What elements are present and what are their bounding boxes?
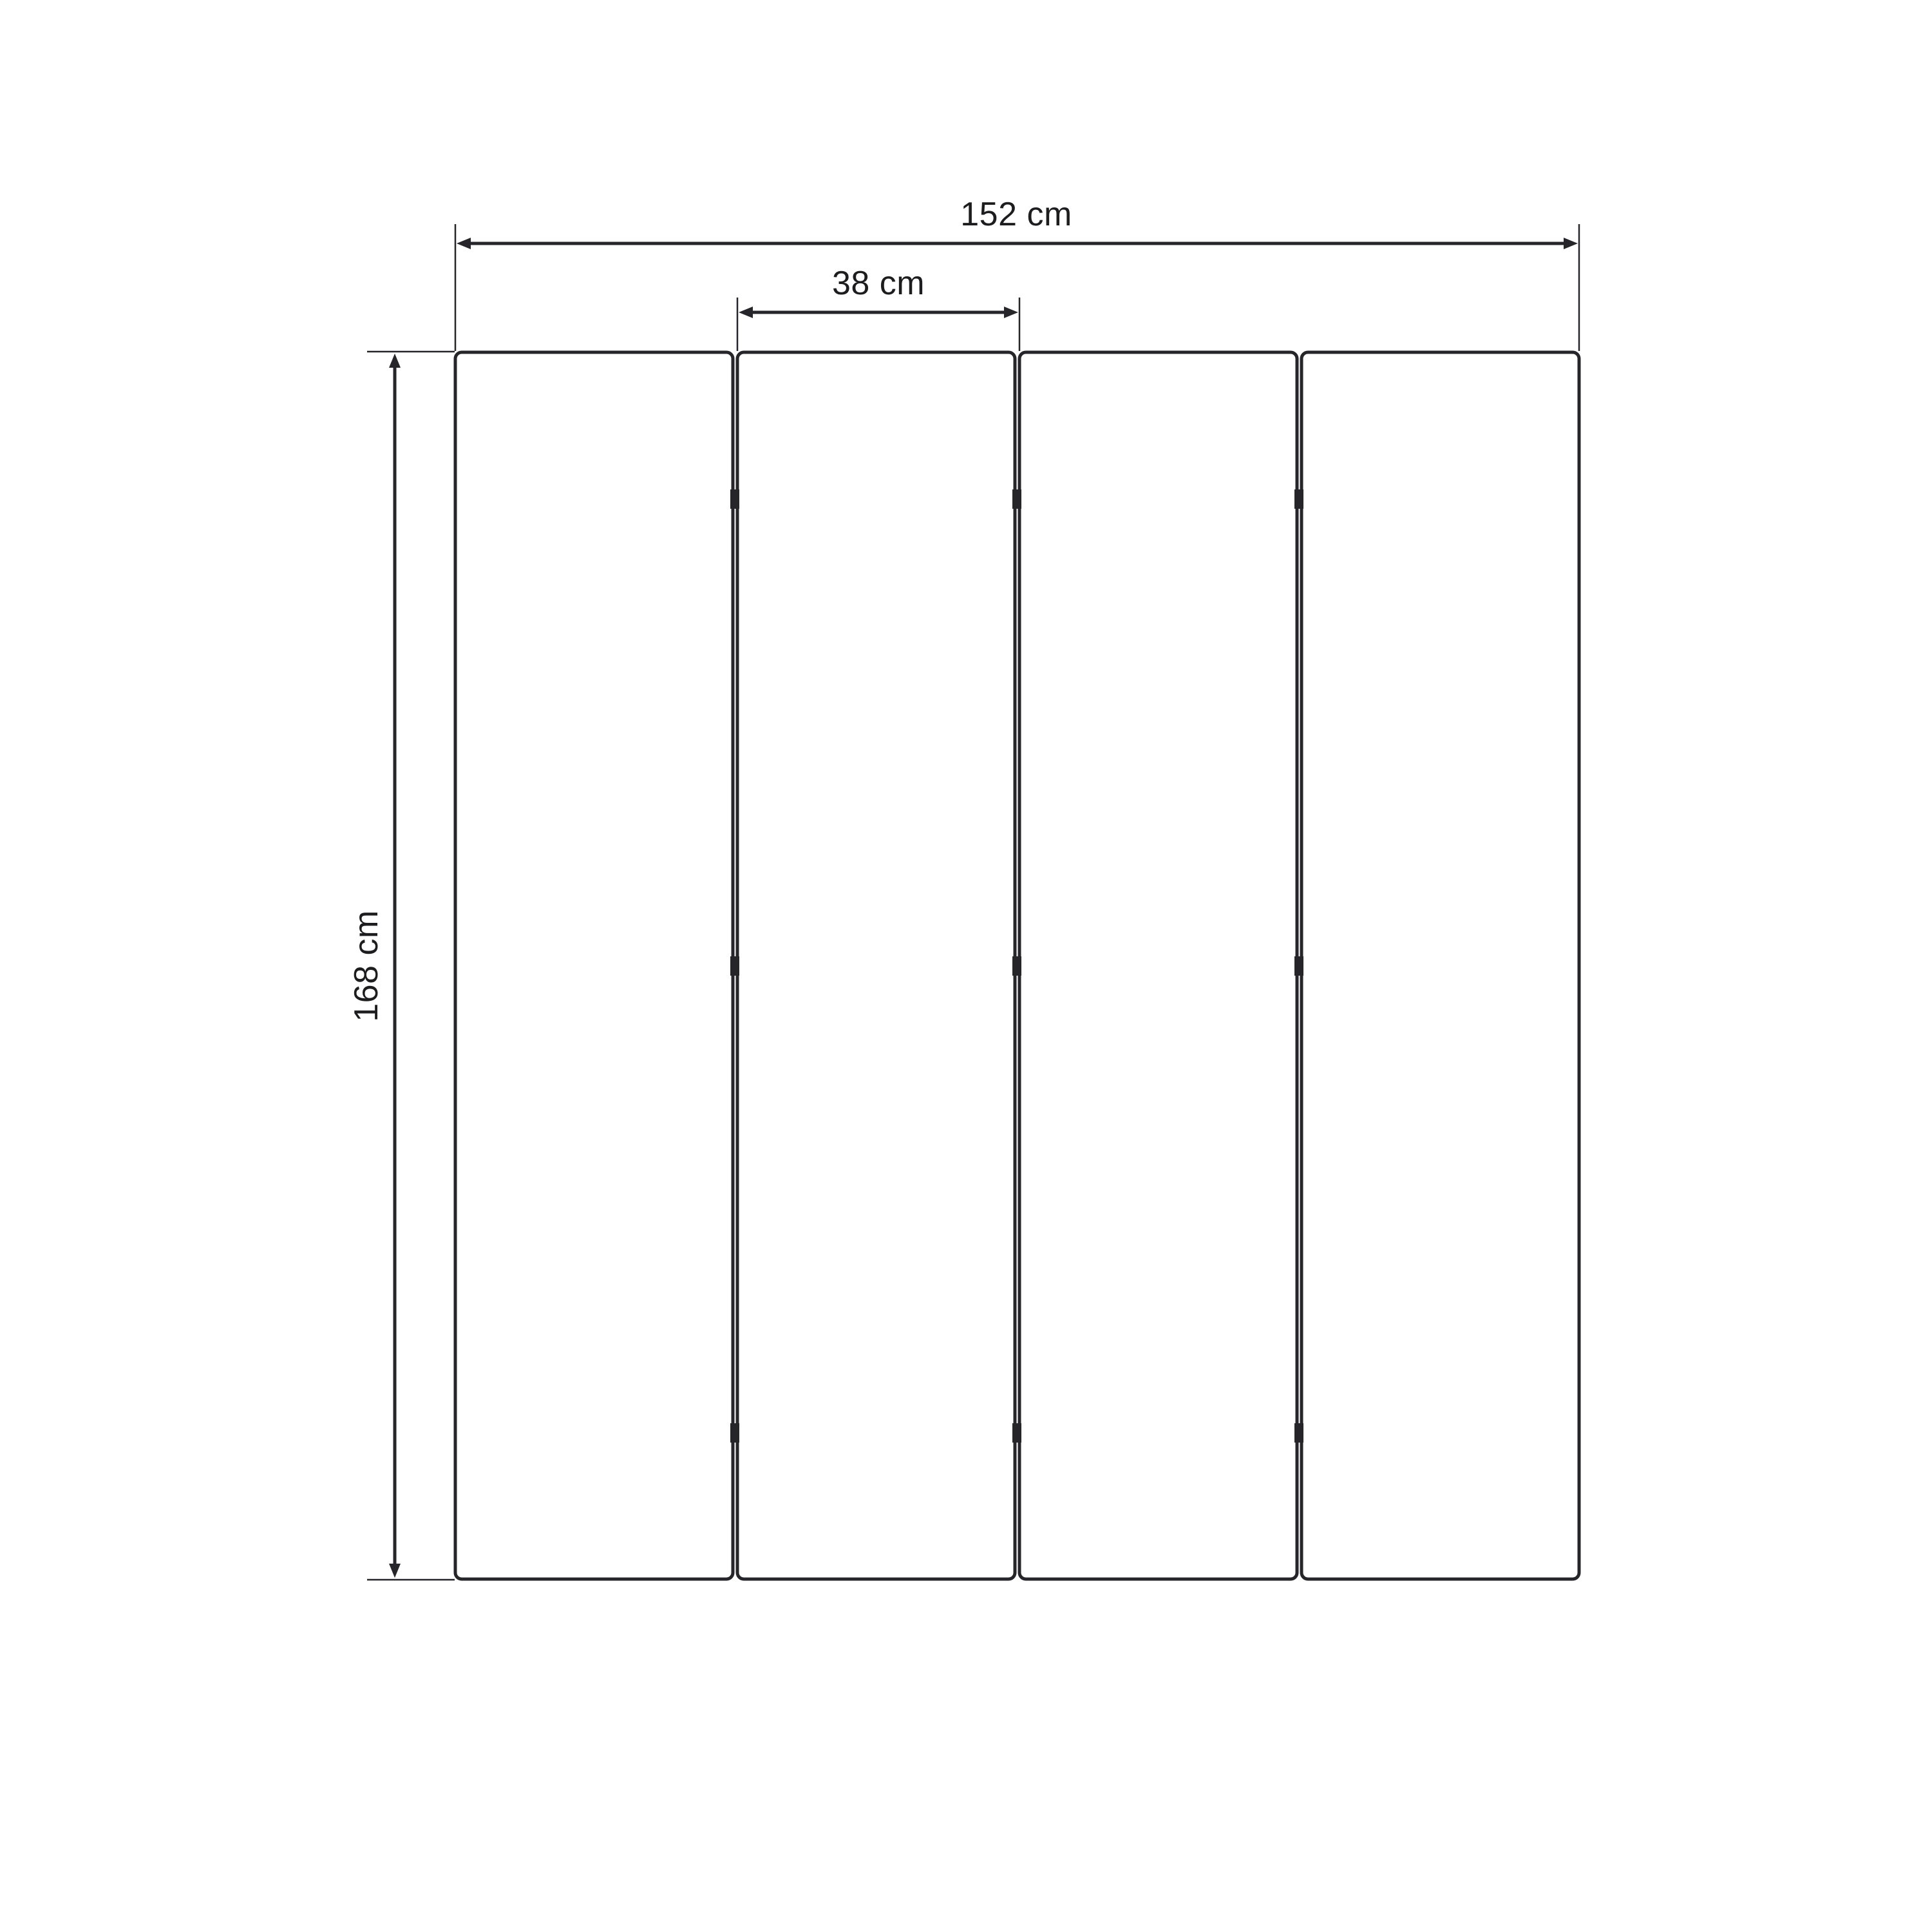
hinge-junction12-middle xyxy=(730,956,739,976)
total-width-label: 152 cm xyxy=(960,196,1072,233)
hinge-junction23-top xyxy=(1012,489,1021,509)
total-width-arrowhead-left-icon xyxy=(457,238,471,249)
hinge-junction23-middle xyxy=(1012,956,1021,976)
hinge-junction34-bottom xyxy=(1294,1423,1303,1443)
hinge-junction34-top xyxy=(1294,489,1303,509)
panel-4 xyxy=(1302,352,1579,1579)
panel-1 xyxy=(455,352,733,1579)
panel-2 xyxy=(737,352,1015,1579)
panel-width-label: 38 cm xyxy=(832,265,925,302)
height-arrowhead-down-icon xyxy=(389,1564,401,1578)
dim-panel-width: 38 cm xyxy=(737,265,1019,351)
hinge-junction34-middle xyxy=(1294,956,1303,976)
drawing-canvas: 152 cm 38 cm 168 cm xyxy=(0,0,1932,1932)
total-width-arrowhead-right-icon xyxy=(1564,238,1578,249)
hinge-junction12-bottom xyxy=(730,1423,739,1443)
height-arrowhead-up-icon xyxy=(389,354,401,368)
hinge-junction23-bottom xyxy=(1012,1423,1021,1443)
dim-total-width: 152 cm xyxy=(455,196,1579,351)
panel-width-arrowhead-left-icon xyxy=(739,307,753,318)
panel-3 xyxy=(1019,352,1297,1579)
dimension-drawing: 152 cm 38 cm 168 cm xyxy=(0,0,1932,1932)
height-label: 168 cm xyxy=(348,910,385,1022)
hinge-junction12-top xyxy=(730,489,739,509)
dim-height: 168 cm xyxy=(348,352,455,1580)
panel-width-arrowhead-right-icon xyxy=(1004,307,1018,318)
